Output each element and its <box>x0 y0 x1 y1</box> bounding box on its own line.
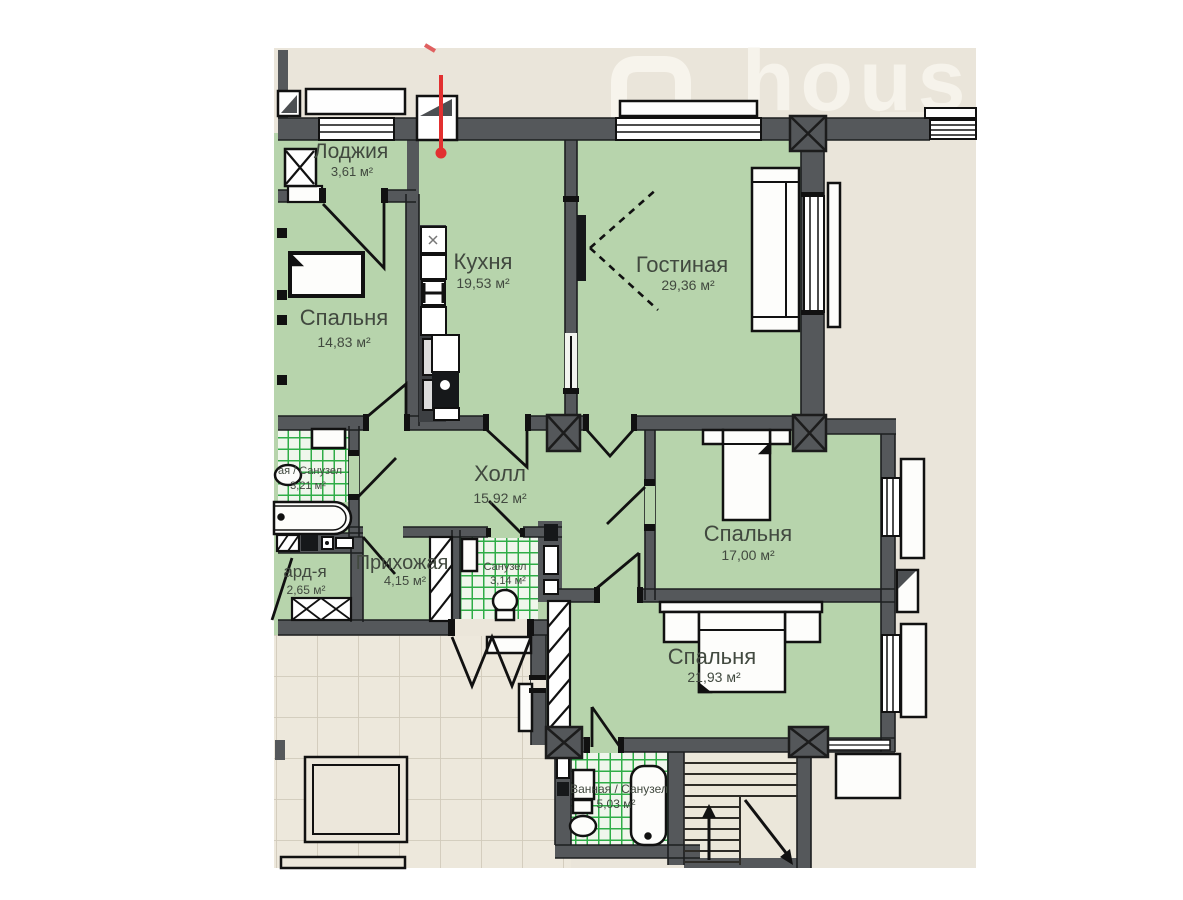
svg-text:Лоджия: Лоджия <box>314 140 388 163</box>
svg-text:Спальня: Спальня <box>704 521 792 546</box>
svg-text:ая / Санузел: ая / Санузел <box>278 465 342 477</box>
svg-text:ард-я: ард-я <box>283 562 326 581</box>
svg-text:21,93 м²: 21,93 м² <box>687 669 741 685</box>
svg-text:Ванная / Санузел: Ванная / Санузел <box>570 782 668 796</box>
svg-text:2,65 м²: 2,65 м² <box>287 583 326 597</box>
svg-text:3,61 м²: 3,61 м² <box>331 164 374 179</box>
svg-text:Гостиная: Гостиная <box>636 252 728 277</box>
svg-text:5,03 м²: 5,03 м² <box>597 797 636 811</box>
svg-text:14,83 м²: 14,83 м² <box>317 334 371 350</box>
svg-text:3,14 м²: 3,14 м² <box>490 575 526 587</box>
svg-text:17,00 м²: 17,00 м² <box>721 547 775 563</box>
svg-text:19,53 м²: 19,53 м² <box>456 275 510 291</box>
svg-text:Кухня: Кухня <box>454 249 513 274</box>
svg-text:Холл: Холл <box>474 461 526 486</box>
svg-text:3,21 м²: 3,21 м² <box>290 480 326 492</box>
svg-text:29,36 м²: 29,36 м² <box>661 277 715 293</box>
svg-text:Спальня: Спальня <box>668 644 756 669</box>
svg-text:15,92 м²: 15,92 м² <box>473 490 527 506</box>
svg-text:Прихожая: Прихожая <box>356 552 449 574</box>
svg-text:Санузел: Санузел <box>484 561 527 573</box>
svg-text:4,15 м²: 4,15 м² <box>384 573 427 588</box>
svg-text:Спальня: Спальня <box>300 305 388 330</box>
